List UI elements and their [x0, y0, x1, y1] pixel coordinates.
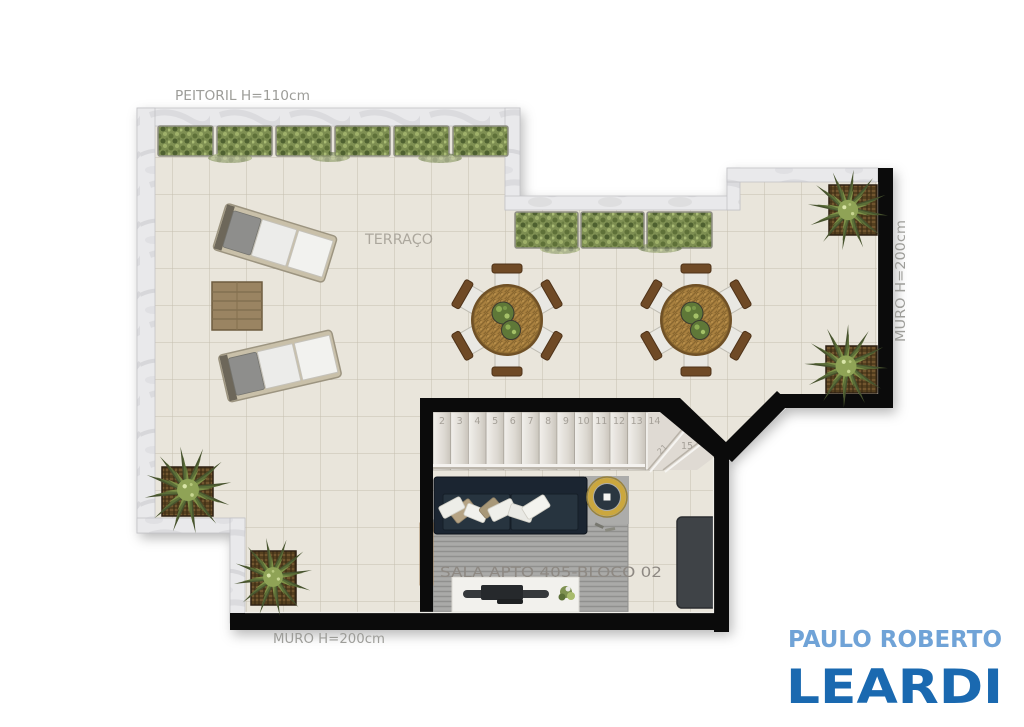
hedge-box: [276, 126, 331, 156]
stair-number: 14: [648, 416, 660, 427]
floor-plan-image: 2 3 4 5 6 7 8 9 10 11 12 13 14 15 21: [0, 0, 1024, 723]
hedge-box: [515, 212, 578, 248]
stair-number: 13: [631, 416, 643, 427]
stair-number: 8: [545, 416, 551, 427]
stair-number: 10: [578, 416, 590, 427]
hedge-box: [335, 126, 390, 156]
label-peitoril: PEITORIL H=110cm: [175, 88, 310, 104]
leardi-logo: PAULO ROBERTO LEARDI: [786, 627, 1003, 715]
label-muro-bottom: MURO H=200cm: [273, 631, 385, 647]
stair-number: 12: [613, 416, 625, 427]
hedge-box: [581, 212, 644, 248]
wall-bottom: [230, 613, 729, 630]
bench: [677, 517, 718, 608]
wood-side-table: [212, 282, 262, 330]
label-terraco: TERRAÇO: [364, 232, 433, 248]
sofa: [434, 477, 587, 534]
wall-step-vertical: [230, 518, 245, 623]
wall-sala-left: [420, 398, 433, 630]
stair-number: 3: [457, 416, 463, 427]
stair-number: 5: [492, 416, 498, 427]
stair-number-winder: 15: [681, 441, 693, 452]
stair-number: 6: [510, 416, 516, 427]
logo-line1: PAULO ROBERTO: [788, 627, 1002, 653]
label-muro-right: MURO H=200cm: [893, 220, 909, 342]
wall-notch-left: [505, 108, 520, 210]
hedge-box: [453, 126, 508, 156]
wall-left: [137, 108, 155, 533]
wall-notch-bottom: [505, 196, 740, 210]
hedge-box: [158, 126, 213, 156]
wall-step-horizontal: [137, 518, 245, 533]
hedge-box: [217, 126, 272, 156]
wall-peitoril-top: [137, 108, 520, 126]
hedge-box: [647, 212, 712, 248]
wall-sala-top: [420, 398, 678, 412]
notch-hedge-row: [515, 212, 712, 254]
stair-number: 11: [595, 416, 607, 427]
stair-number: 2: [439, 416, 445, 427]
hedge-box: [394, 126, 449, 156]
label-sala: SALA APTO 405-BLOCO 02: [440, 565, 662, 581]
stair-number: 4: [474, 416, 480, 427]
logo-line2: LEARDI: [786, 660, 1003, 715]
wall-top-right: [727, 168, 878, 182]
stair-number: 7: [527, 416, 533, 427]
wall-sala-right: [714, 446, 729, 632]
wall-muro-right: [878, 168, 893, 408]
stair-number: 9: [563, 416, 569, 427]
wall-cut-top: [777, 394, 893, 408]
tv-console: [452, 577, 579, 612]
